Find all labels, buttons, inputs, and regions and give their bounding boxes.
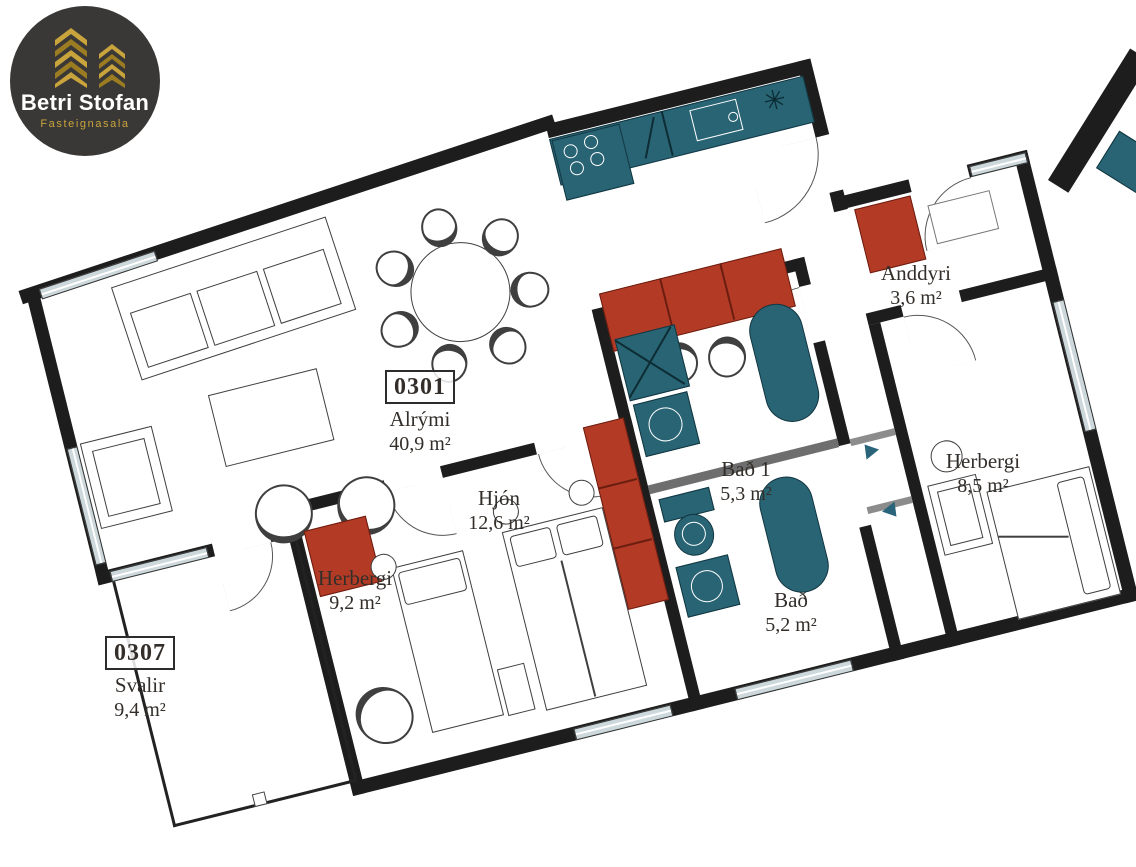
window <box>735 660 854 701</box>
logo-brand-text: Betri Stofan <box>10 90 160 116</box>
nightstand <box>497 663 536 716</box>
bathtub <box>743 298 824 427</box>
room-label-herbergi-92: Herbergi 9,2 m² <box>318 566 392 616</box>
window <box>1052 299 1096 432</box>
room-label-svalir: 0307 Svalir 9,4 m² <box>105 636 175 723</box>
room-area: 12,6 m² <box>468 511 530 536</box>
buildings-icon <box>55 28 133 88</box>
room-label-herbergi-85: Herbergi 8,5 m² <box>946 449 1020 499</box>
wall <box>959 266 1059 302</box>
room-area: 9,4 m² <box>105 698 175 723</box>
window-glass-line <box>737 665 852 695</box>
room-name: Svalir <box>105 673 175 698</box>
room-label-anddyri: Anddyri 3,6 m² <box>881 261 951 311</box>
room-area: 5,3 m² <box>720 482 772 507</box>
room-label-alrymi: 0301 Alrými 40,9 m² <box>385 370 455 457</box>
room-name: Alrými <box>385 407 455 432</box>
room-name: Hjón <box>468 486 530 511</box>
room-area: 3,6 m² <box>881 286 951 311</box>
sofa <box>111 217 354 378</box>
door-arc <box>748 137 834 223</box>
room-area: 8,5 m² <box>946 474 1020 499</box>
wall <box>859 525 904 662</box>
wall <box>792 257 810 287</box>
bed-blanket-line <box>999 536 1069 538</box>
bar-stool <box>706 335 748 380</box>
balcony-drain <box>252 791 268 807</box>
room-area: 9,2 m² <box>318 591 392 616</box>
room-label-hjon: Hjón 12,6 m² <box>468 486 530 536</box>
door-arc <box>387 478 457 548</box>
room-name: Herbergi <box>318 566 392 591</box>
room-name: Bað 1 <box>720 457 772 482</box>
room-area: 5,2 m² <box>765 613 817 638</box>
coffee-table <box>208 368 335 467</box>
armchair <box>344 676 425 756</box>
dining-chair <box>509 270 550 309</box>
room-name: Herbergi <box>946 449 1020 474</box>
neighbor-kitchen-fragment <box>1096 131 1136 215</box>
window-glass-line <box>1058 301 1092 430</box>
room-area: 40,9 m² <box>385 432 455 457</box>
room-label-bad-1: Bað 1 5,3 m² <box>720 457 772 507</box>
unit-number-badge: 0301 <box>385 370 455 404</box>
door-arc <box>904 302 977 375</box>
logo-tagline-text: Fasteignasala <box>10 118 160 130</box>
room-label-bad: Bað 5,2 m² <box>765 588 817 638</box>
room-name: Bað <box>765 588 817 613</box>
unit-number-badge: 0307 <box>105 636 175 670</box>
agency-logo: Betri Stofan Fasteignasala <box>10 6 160 156</box>
room-name: Anddyri <box>881 261 951 286</box>
